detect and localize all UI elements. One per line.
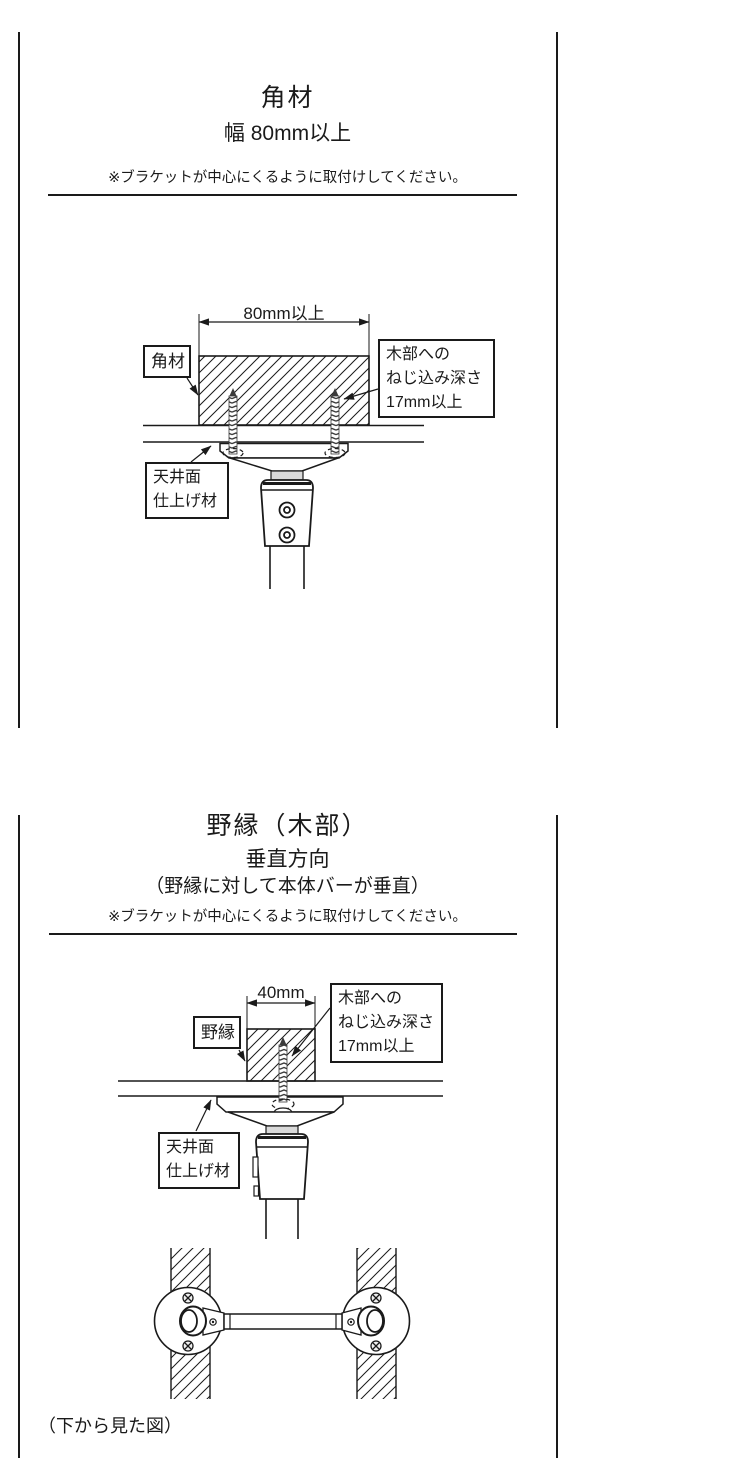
bracket-cone (228, 1112, 334, 1126)
side-latch-upper (253, 1157, 258, 1177)
screw-depth-line1: 木部への (386, 343, 487, 367)
ceiling-line2: 仕上げ材 (166, 1160, 232, 1184)
panel1-screw-depth-box: 木部への ねじ込み深さ 17mm以上 (378, 339, 495, 418)
screw-depth-line2: ねじ込み深さ (386, 367, 487, 391)
bracket-cone (230, 458, 338, 471)
screw-depth-line1: 木部への (338, 987, 435, 1011)
panel2-screw-depth-box: 木部への ねじ込み深さ 17mm以上 (330, 983, 443, 1063)
support-pole (266, 1199, 298, 1239)
ceiling-line2: 仕上げ材 (153, 490, 221, 514)
body-screw-bottom (280, 528, 295, 543)
bottom-view (155, 1248, 410, 1399)
panel2-dimension-label: 40mm (221, 983, 341, 1003)
screw-icon (183, 1293, 193, 1303)
panel1-part-label-box: 角材 (143, 345, 191, 378)
bracket-body (253, 1134, 308, 1199)
side-latch-lower (254, 1186, 259, 1196)
panel2-part-label-box: 野縁 (193, 1016, 241, 1049)
bracket-body (261, 480, 313, 546)
screw-depth-line2: ねじ込み深さ (338, 1011, 435, 1035)
bottom-view-caption: （下から見た図） (38, 1412, 182, 1438)
ceiling-line1: 天井面 (153, 466, 221, 490)
ceiling-line1: 天井面 (166, 1136, 232, 1160)
screw-icon (371, 1293, 381, 1303)
mounting-screw-right (331, 388, 339, 454)
diagram-artwork (0, 0, 750, 1466)
bracket-plate (220, 444, 348, 459)
screw-depth-line3: 17mm以上 (386, 391, 487, 415)
timber-kakuzai (199, 356, 369, 425)
panel1-ceiling-label-box: 天井面 仕上げ材 (145, 462, 229, 519)
bracket-neck (271, 471, 303, 480)
screw-icon (183, 1341, 193, 1351)
bar (224, 1314, 342, 1329)
mounting-screw-left (229, 388, 237, 454)
body-screw-top (280, 503, 295, 518)
screw-icon (371, 1341, 381, 1351)
page: 角材 幅 80mm以上 ※ブラケットが中心にくるように取付けしてください。 80… (0, 0, 750, 1466)
support-pole (270, 546, 304, 589)
ceiling-layers (143, 426, 424, 443)
panel2-ceiling-label-box: 天井面 仕上げ材 (158, 1132, 240, 1189)
panel1-dimension-label: 80mm以上 (214, 299, 354, 324)
mounting-screw (279, 1037, 287, 1102)
bracket-neck (266, 1126, 298, 1134)
screw-depth-line3: 17mm以上 (338, 1035, 435, 1059)
